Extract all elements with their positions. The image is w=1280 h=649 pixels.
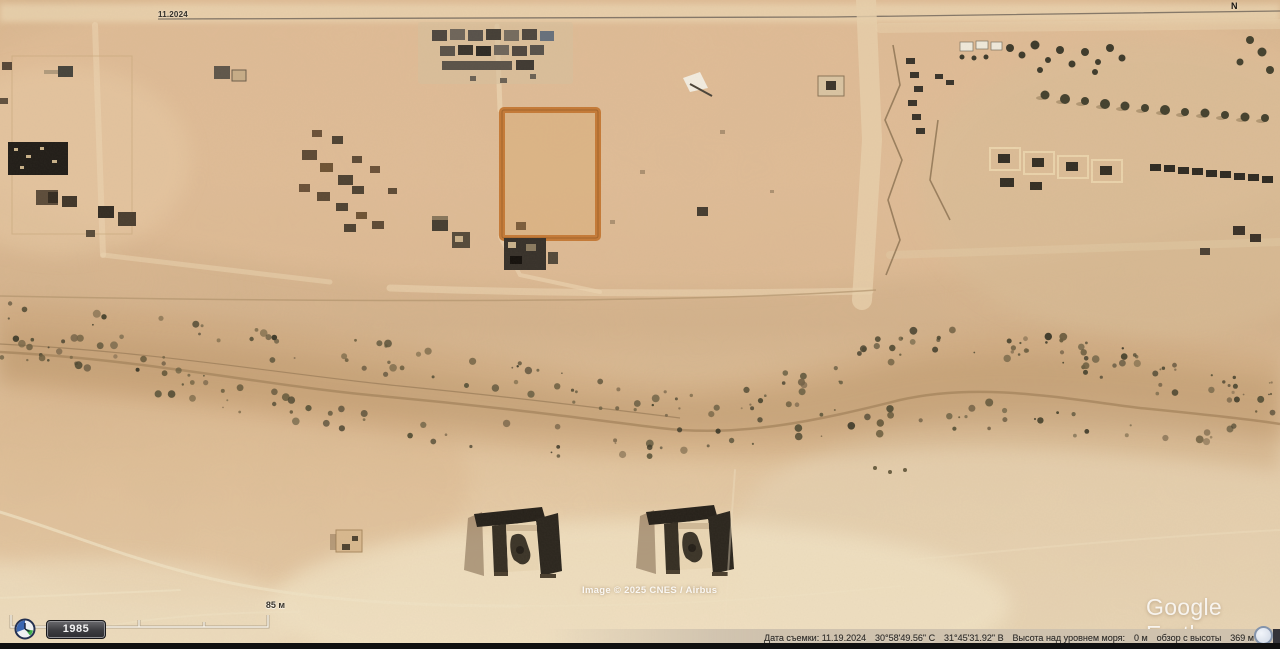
scale-value-label: 85 м	[266, 600, 285, 610]
imagery-attribution: Image © 2025 CNES / Airbus	[582, 585, 717, 596]
elevation-value: 0 м	[1134, 633, 1148, 643]
eye-altitude-value: 369 м	[1230, 633, 1254, 643]
latitude-readout: 30°58'49.56" С	[875, 633, 935, 643]
window-corner-grip	[1273, 629, 1280, 643]
capture-date: Дата съемки: 11.19.2024	[764, 633, 866, 643]
north-indicator: N	[1231, 1, 1238, 11]
imagery-date-label: 11.2024	[158, 10, 188, 19]
google-earth-window: 11.2024 N 85 м 1985 Image © 2025 CNES / …	[0, 0, 1280, 649]
elevation-label: Высота над уровнем моря:	[1013, 633, 1125, 643]
satellite-map-canvas[interactable]	[0, 0, 1280, 649]
eye-altitude-label: обзор с высоты	[1157, 633, 1222, 643]
window-bottom-edge	[0, 643, 1280, 649]
longitude-readout: 31°45'31.92" В	[944, 633, 1004, 643]
